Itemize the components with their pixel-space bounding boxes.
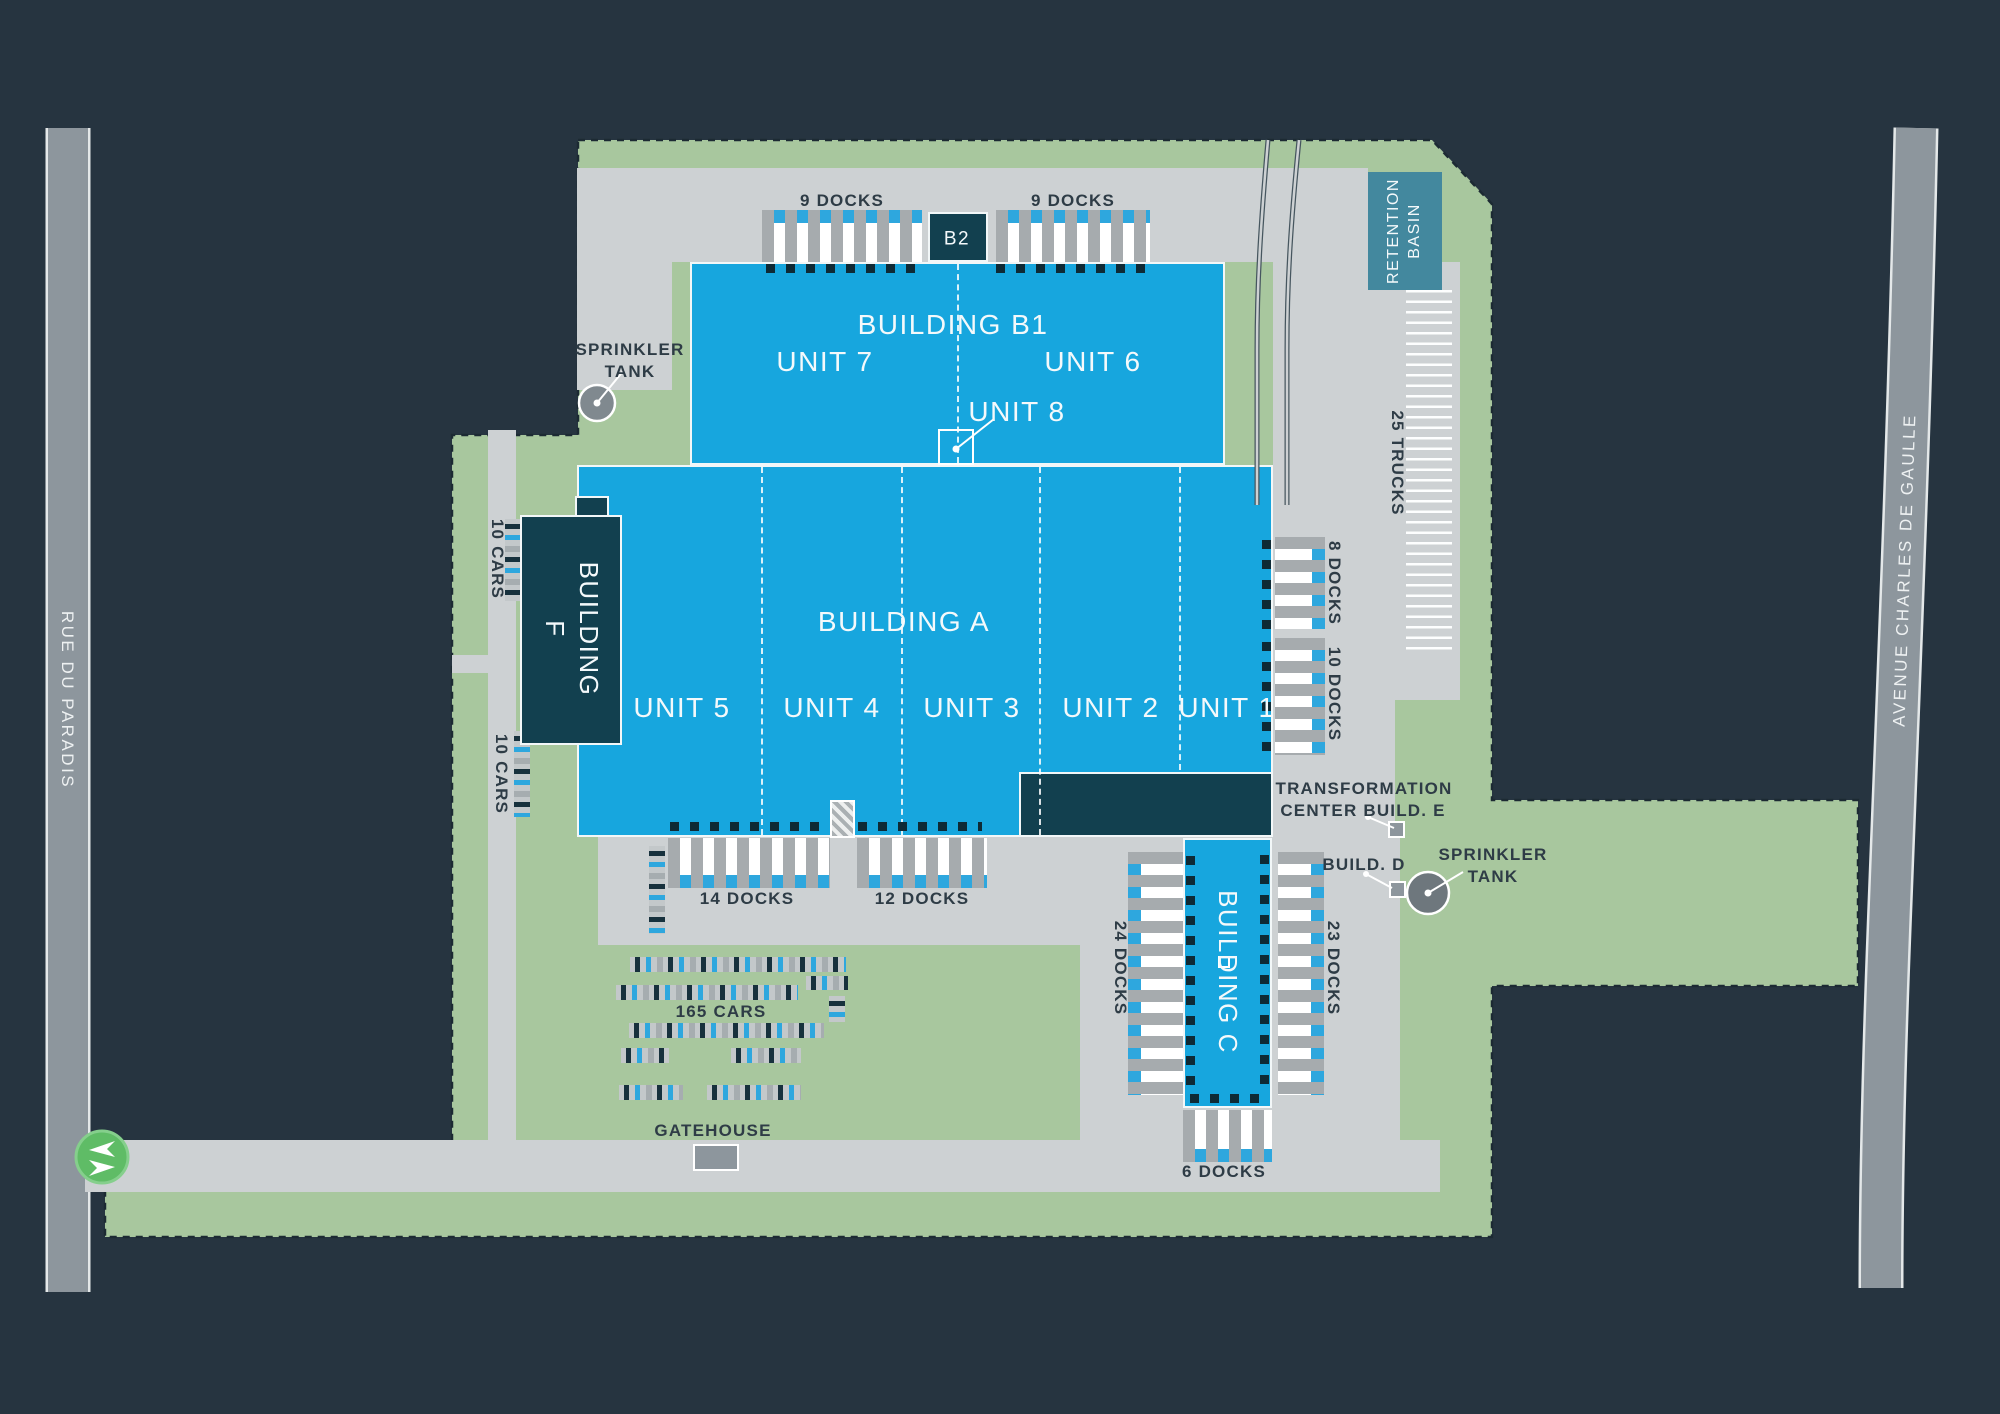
transformation-center-label: TRANSFORMATION CENTER BUILD. E [1276,778,1451,822]
cars-10-north-label: 10 CARS [486,519,508,599]
gatehouse-label: GATEHOUSE [654,1120,771,1142]
docks-10-label: 10 DOCKS [1323,647,1345,742]
unit-2-label: UNIT 2 [1062,690,1159,726]
unit-6-label: UNIT 6 [1044,344,1141,380]
building-b1-title: BUILDING B1 [858,307,1049,343]
road-left-label: RUE DU PARADIS [56,611,78,789]
unit-1-label: UNIT 1 [1178,690,1275,726]
build-d-label: BUILD. D [1322,854,1405,876]
docks-24-label: 24 DOCKS [1109,921,1131,1016]
entrance-marker [76,1131,128,1183]
unit-7-label: UNIT 7 [776,344,873,380]
cars-165-label: 165 CARS [676,1001,767,1023]
retention-basin-label: RETENTION BASIN [1384,172,1426,290]
docks-12-label: 12 DOCKS [875,888,970,910]
building-c-title: BUILDING C [1210,890,1244,1054]
unit-5-label: UNIT 5 [633,690,730,726]
rail-tracks [1257,140,1299,505]
building-a-title: BUILDING A [818,604,990,640]
unit-3-label: UNIT 3 [923,690,1020,726]
cars-10-south-label: 10 CARS [490,734,512,814]
sprinkler-tank-east-label: SPRINKLER TANK [1436,844,1551,888]
site-plan: RUE DU PARADIS AVENUE CHARLES DE GAULLE … [0,0,2000,1414]
building-f-title: BUILDING F [537,554,605,704]
docks-8-label: 8 DOCKS [1323,541,1345,625]
building-b2-label: B2 [944,228,970,253]
sprinkler-tank-west-label: SPRINKLER TANK [573,339,688,383]
docks-6-label: 6 DOCKS [1182,1161,1266,1183]
docks-23-label: 23 DOCKS [1322,921,1344,1016]
unit-8-label: UNIT 8 [968,394,1065,430]
trucks-25-label: 25 TRUCKS [1386,410,1408,515]
docks-14-label: 14 DOCKS [700,888,795,910]
docks-top-east-label: 9 DOCKS [1031,190,1115,212]
docks-top-west-label: 9 DOCKS [800,190,884,212]
unit-4-label: UNIT 4 [783,690,880,726]
